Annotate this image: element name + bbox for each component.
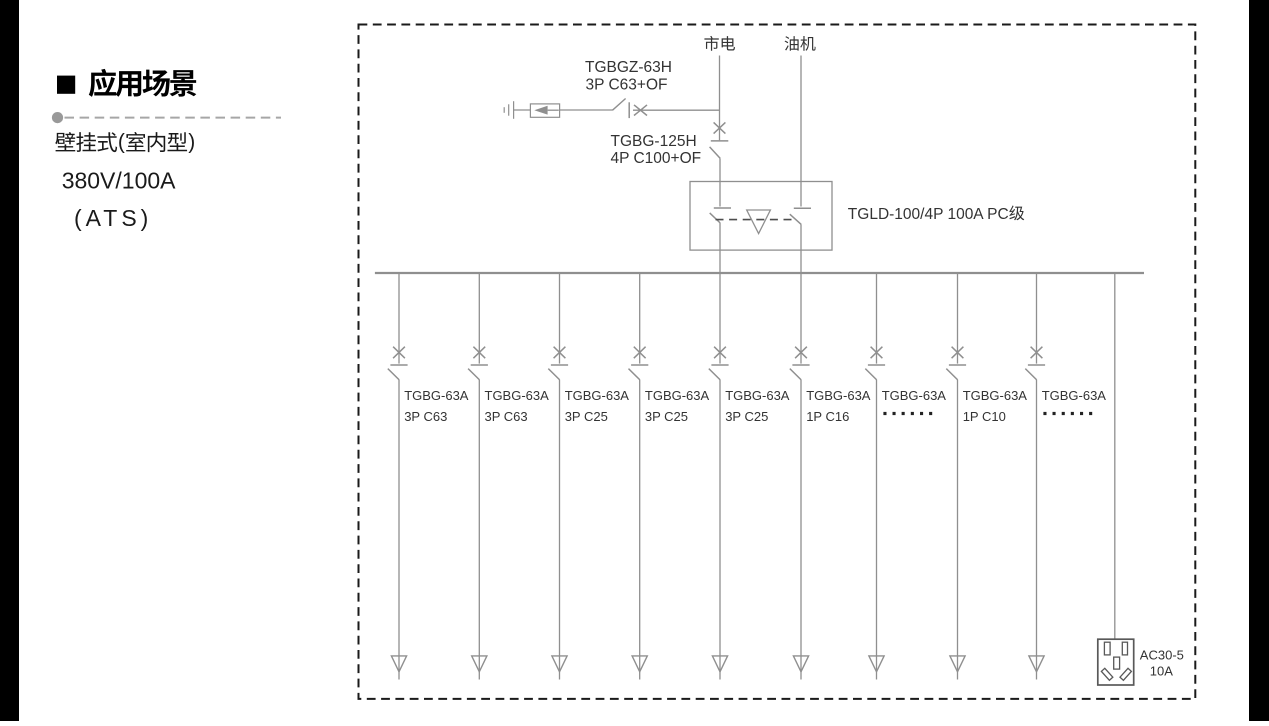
svg-text:10A: 10A (1150, 663, 1173, 678)
svg-text:1P C10: 1P C10 (963, 409, 1006, 424)
svg-text:3P C63+OF: 3P C63+OF (586, 77, 668, 94)
svg-text:TGBG-63A: TGBG-63A (565, 388, 630, 403)
svg-text:380V/100A: 380V/100A (62, 168, 176, 194)
svg-text:TGBG-63A: TGBG-63A (882, 388, 947, 403)
svg-text:3P C63: 3P C63 (404, 409, 447, 424)
svg-text:3P C25: 3P C25 (645, 409, 688, 424)
svg-text:TGBG-125H: TGBG-125H (611, 133, 697, 150)
svg-text:3P C25: 3P C25 (725, 409, 768, 424)
svg-text:): ) (188, 130, 195, 153)
svg-text:TGBG-63A: TGBG-63A (725, 388, 790, 403)
svg-text:(: ( (118, 130, 125, 153)
svg-text:1P C16: 1P C16 (806, 409, 849, 424)
svg-text:(ATS): (ATS) (74, 205, 152, 231)
svg-text:TGBG-63A: TGBG-63A (1042, 388, 1107, 403)
svg-text:TGBG-63A: TGBG-63A (806, 388, 871, 403)
svg-text:TGBG-63A: TGBG-63A (404, 388, 469, 403)
svg-text:3P C63: 3P C63 (485, 409, 528, 424)
svg-text:TGBG-63A: TGBG-63A (485, 388, 550, 403)
svg-text:AC30-5: AC30-5 (1140, 648, 1184, 663)
svg-text:TGBG-63A: TGBG-63A (963, 388, 1028, 403)
svg-text:TGBGZ-63H: TGBGZ-63H (585, 59, 672, 76)
svg-text:4P C100+OF: 4P C100+OF (611, 150, 702, 167)
svg-text:3P C25: 3P C25 (565, 409, 608, 424)
svg-text:TGBG-63A: TGBG-63A (645, 388, 710, 403)
svg-text:TGLD-100/4P 100A PC: TGLD-100/4P 100A PC (848, 206, 1009, 223)
